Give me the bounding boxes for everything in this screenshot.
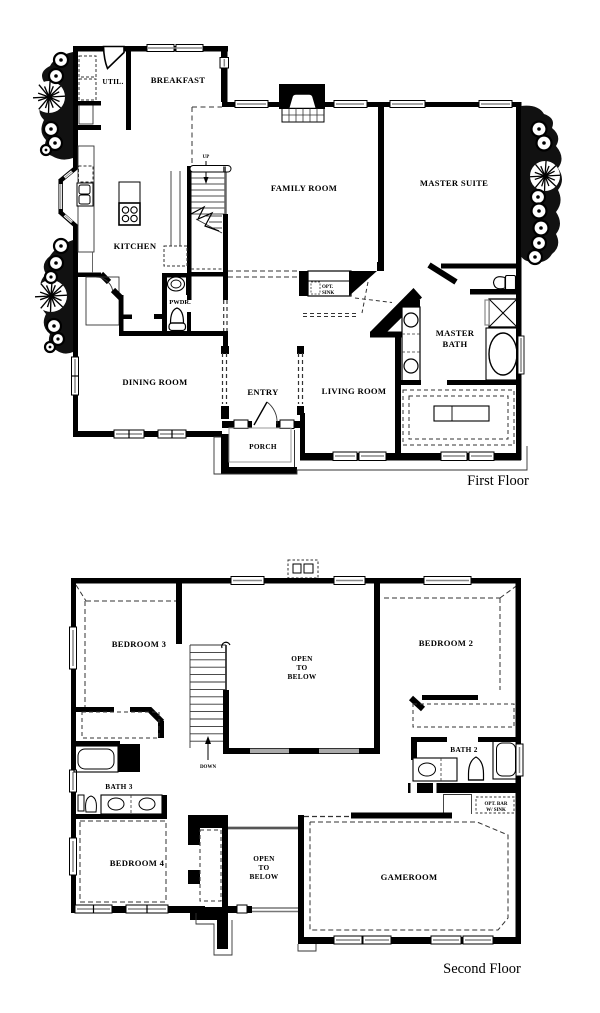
svg-text:First Floor: First Floor [467, 473, 529, 489]
svg-text:PWDR.: PWDR. [169, 299, 191, 306]
svg-text:UTIL.: UTIL. [102, 77, 123, 86]
svg-text:TO: TO [296, 663, 307, 672]
svg-text:UP: UP [203, 155, 210, 160]
svg-text:MASTER: MASTER [436, 328, 475, 338]
svg-text:PORCH: PORCH [249, 442, 277, 451]
svg-text:OPEN: OPEN [291, 654, 313, 663]
svg-text:BEDROOM 4: BEDROOM 4 [110, 858, 165, 868]
svg-text:SINK: SINK [322, 291, 334, 296]
svg-text:OPEN: OPEN [253, 854, 275, 863]
svg-text:BELOW: BELOW [249, 872, 278, 881]
svg-text:LIVING ROOM: LIVING ROOM [322, 386, 387, 396]
svg-text:BATH: BATH [443, 339, 468, 349]
svg-text:TO: TO [258, 863, 269, 872]
svg-text:BEDROOM 3: BEDROOM 3 [112, 639, 167, 649]
svg-text:DINING ROOM: DINING ROOM [122, 377, 187, 387]
svg-text:GAMEROOM: GAMEROOM [381, 872, 438, 882]
svg-text:W/ SINK: W/ SINK [486, 808, 506, 813]
svg-text:ENTRY: ENTRY [247, 387, 279, 397]
svg-text:BATH 3: BATH 3 [105, 782, 132, 791]
svg-text:OPT. BAR: OPT. BAR [485, 802, 508, 807]
svg-text:OPT.: OPT. [322, 285, 334, 290]
svg-text:DOWN: DOWN [200, 765, 217, 770]
svg-text:Second Floor: Second Floor [443, 961, 521, 977]
svg-text:BELOW: BELOW [287, 672, 316, 681]
svg-text:BREAKFAST: BREAKFAST [151, 75, 206, 85]
svg-text:BATH 2: BATH 2 [450, 745, 477, 754]
svg-text:KITCHEN: KITCHEN [114, 241, 157, 251]
svg-text:MASTER SUITE: MASTER SUITE [420, 178, 488, 188]
svg-text:BEDROOM 2: BEDROOM 2 [419, 638, 474, 648]
svg-text:FAMILY ROOM: FAMILY ROOM [271, 183, 337, 193]
